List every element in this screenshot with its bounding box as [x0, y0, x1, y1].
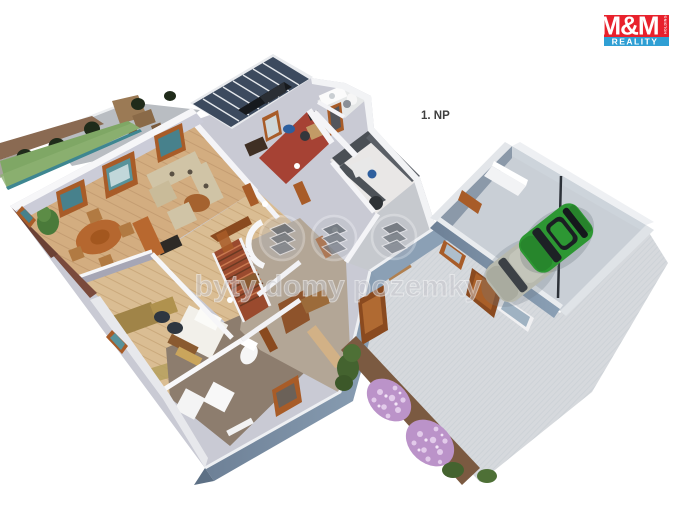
svg-text:REALITY: REALITY	[612, 37, 659, 47]
svg-text:HOLDING: HOLDING	[664, 15, 668, 34]
svg-text:1. NP: 1. NP	[421, 110, 450, 122]
svg-text:byty domy pozemky: byty domy pozemky	[195, 270, 482, 303]
